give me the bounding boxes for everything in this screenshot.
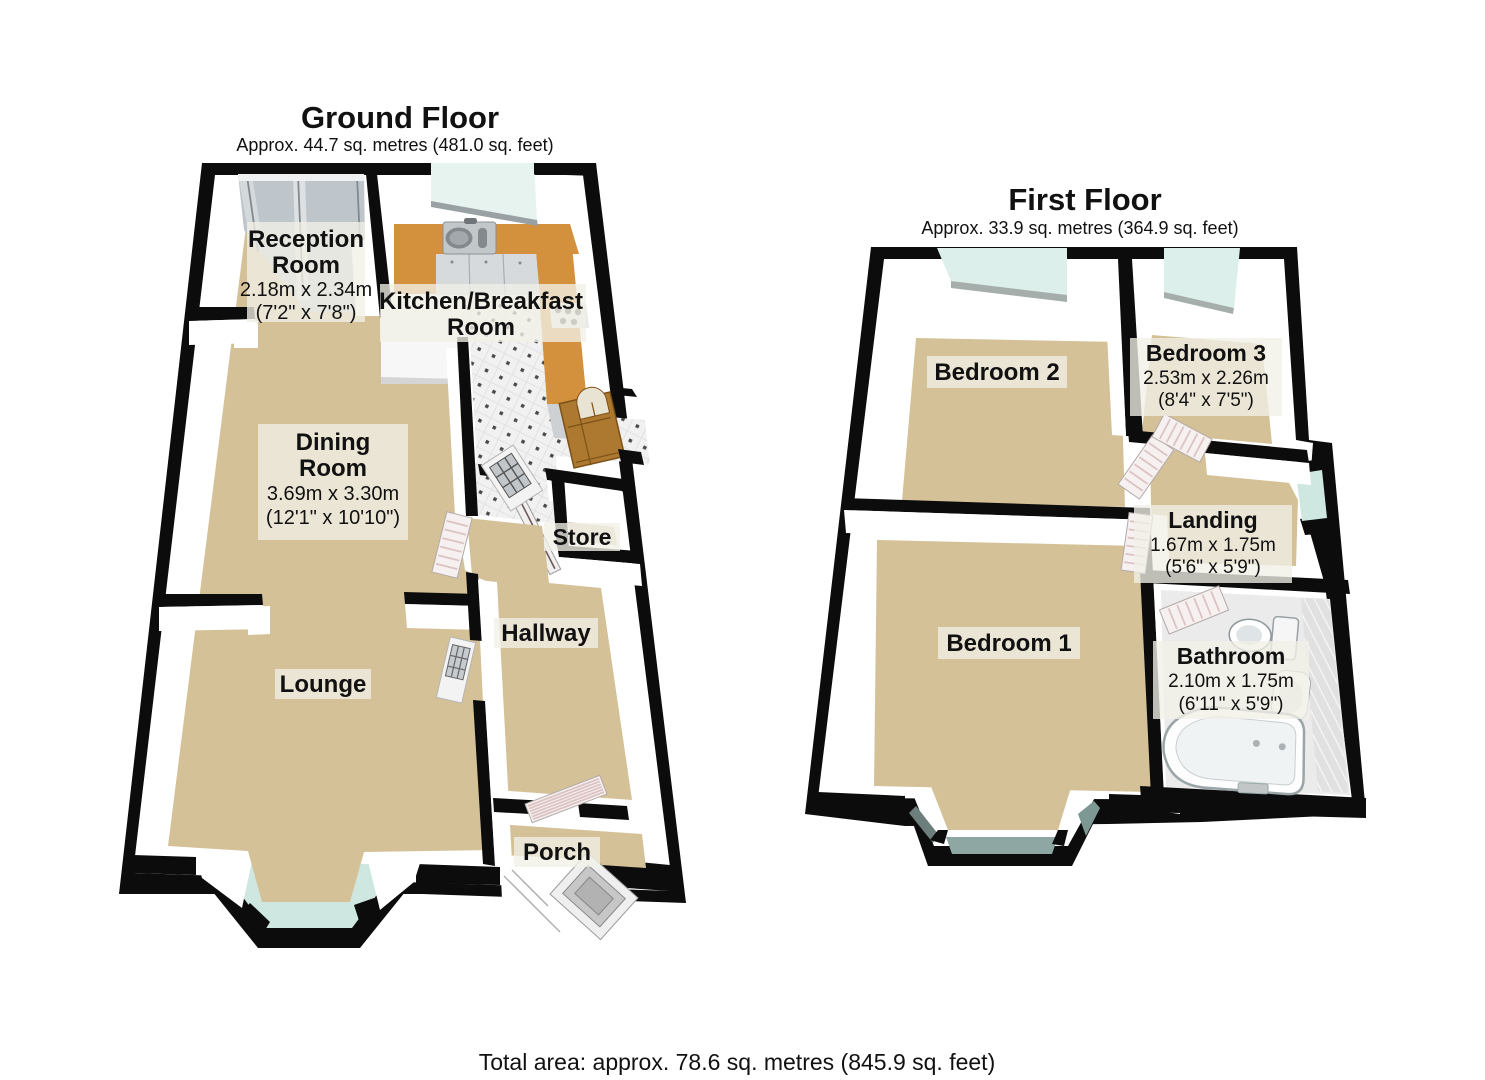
- svg-text:(8'4" x 7'5"): (8'4" x 7'5"): [1158, 390, 1254, 411]
- svg-text:2.53m x 2.26m: 2.53m x 2.26m: [1143, 368, 1269, 389]
- svg-text:Hallway: Hallway: [501, 620, 591, 647]
- svg-text:Total area: approx. 78.6 sq. m: Total area: approx. 78.6 sq. metres (845…: [479, 1049, 996, 1075]
- svg-text:Landing: Landing: [1168, 507, 1257, 533]
- svg-text:Kitchen/Breakfast: Kitchen/Breakfast: [379, 288, 583, 315]
- svg-text:(5'6" x 5'9"): (5'6" x 5'9"): [1165, 557, 1261, 578]
- svg-text:(6'11" x 5'9"): (6'11" x 5'9"): [1179, 694, 1284, 715]
- svg-text:Room: Room: [272, 252, 340, 279]
- svg-text:2.10m x 1.75m: 2.10m x 1.75m: [1168, 671, 1294, 692]
- svg-text:Dining: Dining: [296, 429, 371, 456]
- svg-text:(12'1" x 10'10"): (12'1" x 10'10"): [266, 507, 400, 529]
- svg-text:Porch: Porch: [523, 839, 591, 866]
- svg-text:Room: Room: [447, 314, 515, 341]
- svg-text:Ground Floor: Ground Floor: [301, 100, 499, 135]
- svg-text:Reception: Reception: [248, 226, 364, 253]
- svg-text:3.69m x 3.30m: 3.69m x 3.30m: [267, 483, 399, 505]
- svg-text:1.67m x 1.75m: 1.67m x 1.75m: [1150, 535, 1276, 556]
- svg-text:Bedroom 2: Bedroom 2: [934, 359, 1059, 386]
- svg-text:First Floor: First Floor: [1008, 182, 1161, 217]
- svg-text:Bedroom 3: Bedroom 3: [1146, 340, 1266, 366]
- svg-text:Store: Store: [553, 524, 612, 550]
- svg-text:Bedroom 1: Bedroom 1: [946, 630, 1071, 657]
- svg-text:Bathroom: Bathroom: [1177, 643, 1286, 669]
- svg-text:(7'2" x 7'8"): (7'2" x 7'8"): [256, 302, 357, 324]
- svg-text:2.18m x 2.34m: 2.18m x 2.34m: [240, 279, 372, 301]
- svg-text:Approx. 44.7 sq. metres (481.0: Approx. 44.7 sq. metres (481.0 sq. feet): [236, 135, 553, 155]
- svg-text:Approx. 33.9 sq. metres (364.9: Approx. 33.9 sq. metres (364.9 sq. feet): [921, 218, 1238, 238]
- svg-text:Room: Room: [299, 455, 367, 482]
- svg-text:Lounge: Lounge: [280, 671, 367, 698]
